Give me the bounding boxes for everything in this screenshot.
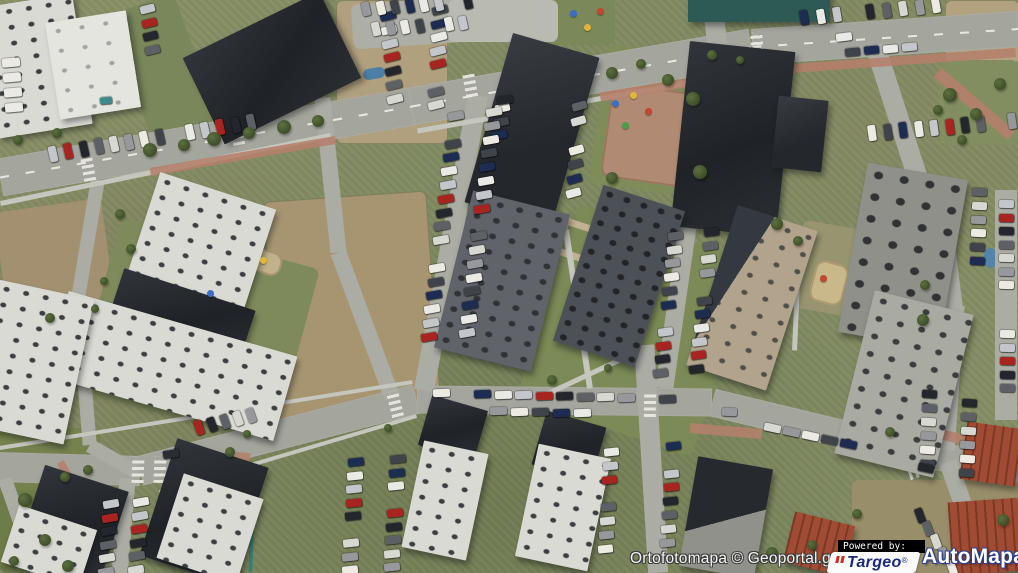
car bbox=[556, 392, 573, 401]
car bbox=[902, 42, 918, 51]
play-equipment bbox=[584, 24, 591, 31]
tree bbox=[707, 50, 717, 60]
tree bbox=[100, 277, 108, 285]
car bbox=[574, 409, 591, 418]
tree bbox=[606, 67, 618, 79]
tree bbox=[45, 313, 55, 323]
car bbox=[959, 454, 975, 463]
car bbox=[913, 121, 923, 138]
car bbox=[341, 565, 358, 573]
car bbox=[704, 227, 720, 237]
tree bbox=[9, 556, 19, 566]
car bbox=[898, 0, 908, 16]
car bbox=[604, 447, 620, 457]
play-equipment bbox=[612, 100, 619, 107]
tree bbox=[736, 56, 744, 64]
car bbox=[494, 390, 511, 399]
car bbox=[348, 457, 365, 467]
car bbox=[386, 508, 403, 518]
car bbox=[347, 471, 364, 481]
car bbox=[920, 445, 936, 454]
tree bbox=[997, 514, 1009, 526]
tree bbox=[917, 314, 929, 326]
tree bbox=[83, 465, 93, 475]
car bbox=[864, 46, 880, 55]
car bbox=[603, 461, 619, 471]
tree bbox=[604, 364, 612, 372]
car bbox=[971, 215, 986, 224]
car bbox=[553, 408, 570, 417]
building bbox=[515, 444, 611, 572]
tree bbox=[60, 472, 70, 482]
tree bbox=[636, 59, 646, 69]
car bbox=[664, 469, 680, 479]
car bbox=[3, 72, 22, 83]
car bbox=[389, 468, 406, 478]
car bbox=[130, 524, 147, 535]
car bbox=[383, 562, 400, 572]
car bbox=[342, 552, 359, 562]
car bbox=[597, 393, 614, 402]
tree bbox=[547, 375, 557, 385]
play-equipment bbox=[630, 92, 637, 99]
car bbox=[344, 511, 361, 521]
car bbox=[386, 522, 403, 532]
car bbox=[345, 498, 362, 508]
car bbox=[970, 243, 985, 252]
map-viewport[interactable]: Ortofotomapa © Geoportal.gov.pl Powered … bbox=[0, 0, 1018, 573]
car bbox=[535, 391, 552, 400]
car bbox=[5, 102, 24, 113]
car bbox=[474, 390, 491, 399]
tree bbox=[143, 143, 157, 157]
tree bbox=[126, 244, 136, 254]
car bbox=[959, 468, 975, 477]
car bbox=[881, 2, 891, 18]
car bbox=[660, 299, 676, 309]
car bbox=[660, 538, 676, 548]
tree bbox=[225, 447, 235, 457]
car bbox=[999, 213, 1014, 221]
tree bbox=[793, 236, 803, 246]
tree bbox=[243, 430, 251, 438]
car bbox=[617, 393, 634, 402]
car bbox=[1000, 384, 1015, 392]
tree bbox=[18, 493, 32, 507]
car bbox=[944, 118, 954, 135]
zebra-crossing bbox=[644, 391, 656, 417]
car bbox=[515, 391, 532, 400]
building bbox=[45, 10, 141, 120]
car bbox=[960, 440, 976, 449]
car bbox=[931, 0, 941, 14]
play-equipment bbox=[260, 257, 267, 264]
tree bbox=[39, 534, 51, 546]
car bbox=[999, 254, 1014, 262]
car bbox=[131, 510, 148, 521]
car bbox=[661, 524, 677, 534]
car bbox=[845, 47, 861, 56]
tree bbox=[994, 78, 1006, 90]
car bbox=[666, 245, 682, 255]
car bbox=[662, 510, 678, 520]
car bbox=[999, 227, 1014, 235]
car bbox=[600, 516, 616, 526]
car bbox=[696, 295, 712, 305]
car bbox=[865, 3, 875, 19]
car bbox=[722, 408, 737, 417]
tree bbox=[13, 135, 23, 145]
car bbox=[929, 119, 939, 136]
car bbox=[1006, 113, 1016, 130]
car bbox=[882, 123, 892, 140]
car bbox=[1000, 357, 1015, 365]
car bbox=[999, 200, 1014, 208]
car bbox=[388, 481, 405, 491]
car bbox=[127, 564, 144, 573]
car bbox=[656, 341, 672, 351]
orthophoto-canvas bbox=[0, 0, 1018, 573]
tree bbox=[686, 92, 700, 106]
car bbox=[1000, 330, 1015, 338]
automapa-logo[interactable]: AutoMapa® bbox=[922, 545, 1018, 569]
car bbox=[921, 403, 937, 412]
tree bbox=[384, 424, 392, 432]
car bbox=[999, 240, 1014, 248]
car bbox=[702, 241, 718, 251]
play-equipment bbox=[820, 275, 827, 282]
play-equipment bbox=[597, 8, 604, 15]
car bbox=[132, 497, 149, 508]
car bbox=[433, 389, 450, 398]
tree bbox=[662, 74, 674, 86]
tree bbox=[243, 127, 255, 139]
car bbox=[883, 44, 899, 53]
play-equipment bbox=[622, 122, 629, 129]
tree bbox=[606, 172, 618, 184]
car bbox=[658, 394, 675, 403]
tree bbox=[277, 120, 291, 134]
car bbox=[922, 389, 938, 398]
car bbox=[961, 412, 977, 421]
tree bbox=[91, 305, 99, 313]
car bbox=[598, 544, 614, 554]
car bbox=[600, 502, 616, 512]
tree bbox=[62, 560, 74, 572]
car bbox=[999, 281, 1014, 289]
car bbox=[970, 229, 985, 238]
car bbox=[969, 257, 984, 266]
zebra-crossing bbox=[132, 457, 145, 483]
car bbox=[128, 551, 145, 562]
targeo-accent-icon bbox=[840, 556, 844, 563]
car bbox=[566, 173, 583, 185]
car bbox=[385, 535, 402, 545]
car bbox=[914, 0, 924, 15]
car bbox=[662, 496, 678, 506]
car bbox=[920, 431, 936, 440]
car bbox=[343, 538, 360, 548]
tree bbox=[885, 427, 895, 437]
tree bbox=[807, 540, 817, 550]
car bbox=[972, 188, 987, 197]
car bbox=[999, 267, 1014, 275]
targeo-accent-icon bbox=[835, 556, 839, 563]
building bbox=[401, 440, 488, 560]
car bbox=[576, 392, 593, 401]
targeo-logo-text: Targeo bbox=[847, 554, 902, 572]
car bbox=[921, 417, 937, 426]
play-equipment bbox=[207, 290, 214, 297]
tree bbox=[115, 209, 125, 219]
car bbox=[1000, 343, 1015, 351]
car bbox=[960, 426, 976, 435]
targeo-registered-mark: ® bbox=[902, 556, 908, 565]
targeo-logo[interactable]: Targeo ® bbox=[826, 552, 920, 573]
car bbox=[532, 408, 549, 417]
car bbox=[663, 483, 679, 493]
car bbox=[346, 484, 363, 494]
tree bbox=[52, 128, 62, 138]
car bbox=[666, 441, 682, 451]
car bbox=[1000, 370, 1015, 378]
car bbox=[384, 549, 401, 559]
tree bbox=[957, 135, 967, 145]
tree bbox=[852, 509, 862, 519]
car bbox=[390, 454, 407, 464]
tree bbox=[943, 88, 957, 102]
automapa-logo-text: AutoMapa bbox=[922, 545, 1018, 568]
car bbox=[832, 6, 842, 22]
tree bbox=[693, 165, 707, 179]
tree bbox=[771, 218, 783, 230]
building bbox=[688, 0, 830, 22]
car bbox=[2, 57, 21, 68]
car bbox=[971, 201, 986, 210]
car bbox=[692, 337, 708, 347]
tree bbox=[207, 132, 221, 146]
car bbox=[961, 398, 977, 407]
play-equipment bbox=[570, 10, 577, 17]
car bbox=[490, 407, 507, 416]
car bbox=[602, 475, 618, 485]
car bbox=[4, 87, 23, 98]
tree bbox=[312, 115, 324, 127]
tree bbox=[933, 105, 943, 115]
car bbox=[867, 125, 877, 142]
car bbox=[565, 187, 582, 199]
building bbox=[771, 96, 828, 173]
car bbox=[100, 96, 113, 104]
tree bbox=[178, 139, 190, 151]
car bbox=[511, 407, 528, 416]
car bbox=[599, 530, 615, 540]
tree bbox=[970, 108, 982, 120]
tree bbox=[920, 280, 930, 290]
play-equipment bbox=[645, 108, 652, 115]
